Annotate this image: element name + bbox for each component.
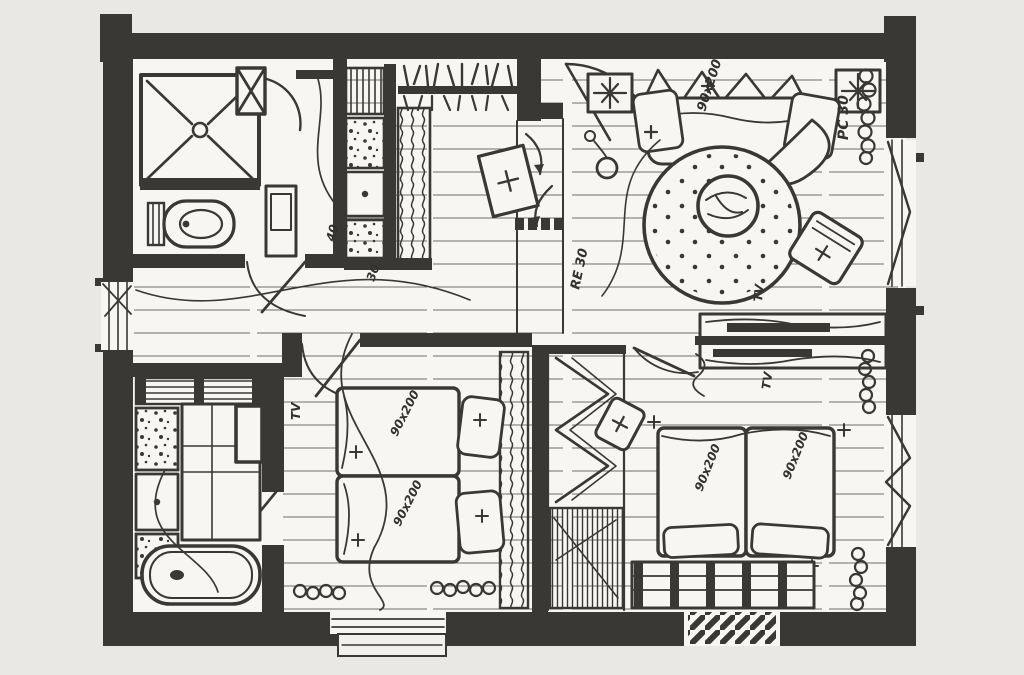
- doormat: [684, 610, 780, 646]
- tv-console: [695, 314, 886, 368]
- wall-left-lower: [103, 350, 133, 646]
- ceiling-light-icon: [588, 74, 632, 112]
- wall-bathroom-bottom: [133, 254, 245, 268]
- wall-kitchen-divider: [384, 64, 396, 270]
- shelf-bar: [296, 70, 338, 79]
- window-left: [101, 282, 134, 350]
- wall-right-top: [886, 40, 916, 138]
- wall-top: [118, 33, 890, 59]
- toilet-icon: [148, 201, 234, 247]
- window-right-living: [884, 140, 916, 286]
- appliance-column: [346, 68, 384, 258]
- bathtub: [142, 546, 260, 604]
- counter-base: [344, 258, 432, 270]
- tv-panel-living-side: [727, 323, 830, 332]
- headboard-bench: [632, 562, 814, 608]
- window-bottom-bedroom1: [330, 612, 446, 656]
- wall-bedroom1-top: [360, 333, 512, 347]
- wall-shower-stub: [140, 178, 260, 190]
- sink: [236, 406, 262, 462]
- wall-left-upper: [103, 40, 133, 282]
- annotation-tv-living: TV: [751, 282, 767, 302]
- annotation-tv-bedroom1: TV: [289, 401, 303, 420]
- wall-bathroom2-right-lower: [262, 545, 284, 612]
- coffee-table: [698, 176, 758, 236]
- washbasin-icon: [266, 186, 296, 256]
- wall-bedroom1-right: [532, 345, 548, 612]
- curtain-wardrobe: [500, 352, 528, 608]
- floor-plan-svg: 90x200 PC 30 RE 30 TV TV TV 90x200 90x20…: [0, 0, 1024, 675]
- wall-right-middle: [886, 288, 916, 415]
- tv-panel-bedroom-side: [713, 349, 812, 357]
- wall-bathroom2-top: [103, 363, 293, 377]
- wall-bathroom2-right-upper: [262, 377, 284, 492]
- wall-entry-stub: [517, 59, 541, 121]
- wall-bottom: [103, 612, 916, 646]
- double-bed: [648, 416, 850, 574]
- bench: [136, 378, 262, 404]
- vanity-counter: [182, 404, 262, 540]
- floor-plan-sketch: 90x200 PC 30 RE 30 TV TV TV 90x200 90x20…: [0, 0, 1024, 675]
- tall-cabinet: [398, 108, 430, 260]
- vent-shaft-icon: [237, 68, 265, 114]
- window-right-bedroom: [884, 415, 916, 547]
- console-partition-wall: [695, 336, 886, 345]
- annotation-pc30: PC 30: [836, 95, 852, 140]
